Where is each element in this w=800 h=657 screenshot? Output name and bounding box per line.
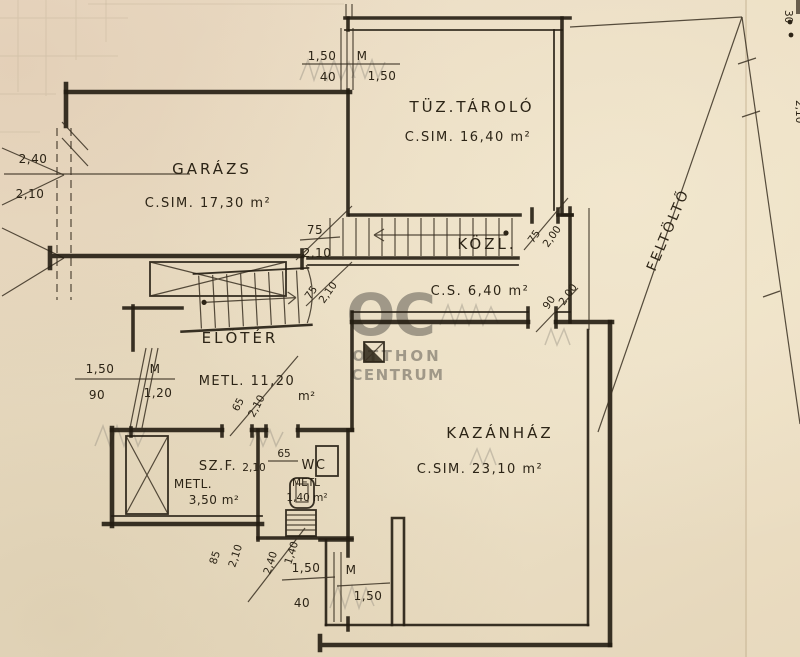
dim-garage-door-height: 2,10 bbox=[16, 187, 45, 201]
watermark-line2: CENTRUM bbox=[351, 366, 444, 384]
ramp-dim-top: 30 bbox=[782, 10, 794, 23]
room-label-tuz-tarolo: TÜZ.TÁROLÓ bbox=[408, 97, 534, 116]
watermark-logo: OC bbox=[346, 281, 434, 349]
dim-tuz-window-width: 1,50 bbox=[308, 49, 337, 63]
dim-tuz-window-parapet: 40 bbox=[320, 70, 336, 84]
room-area-eloter: METL. 11,20 bbox=[199, 374, 296, 389]
dim-tuz-window-m: M bbox=[357, 49, 368, 63]
dim-eloter-window-parapet: 90 bbox=[89, 388, 105, 402]
scanned-floorplan-page: OC OTTHON CENTRUM bbox=[0, 0, 800, 657]
room-area-tuz-tarolo: C.SIM. 16,40 m² bbox=[405, 130, 532, 145]
dim-eloter-door-height: 2,10 bbox=[246, 393, 268, 419]
dim-kazan-window-width: 1,50 bbox=[292, 561, 321, 575]
room-mat-szf: METL. bbox=[174, 477, 212, 491]
dim-eloter-window-width: 1,50 bbox=[86, 362, 115, 376]
room-label-kazanhaz: KAZÁNHÁZ bbox=[446, 423, 553, 442]
dim-szf-door-width: 85 bbox=[207, 549, 223, 565]
room-area-unit-eloter: m² bbox=[298, 389, 316, 403]
room-area-szf: 3,50 m² bbox=[189, 493, 240, 507]
dim-stair-door-left-height: 2,10 bbox=[303, 246, 332, 260]
dim-eloter-window-m: M bbox=[150, 362, 161, 376]
dim-kazan-window-height: 1,50 bbox=[354, 589, 383, 603]
room-label-garazs: GARÁZS bbox=[172, 159, 252, 178]
room-label-szf: SZ.F. bbox=[199, 459, 237, 474]
dim-kazan-window-m: M bbox=[346, 563, 357, 577]
dim-stair-door-right-height: 2,00 bbox=[541, 224, 564, 250]
dim-stair-door-left2-height: 2,10 bbox=[317, 280, 340, 306]
room-label-wc: WC bbox=[302, 458, 327, 473]
dim-tuz-window-height: 1,50 bbox=[368, 69, 397, 83]
ramp-label: FELTÖLTŐ bbox=[642, 186, 693, 274]
dim-kazan-door-height: 2,00 bbox=[557, 282, 580, 308]
room-area-garazs: C.SIM. 17,30 m² bbox=[145, 196, 272, 211]
dim-eloter-window-height: 1,20 bbox=[144, 386, 173, 400]
dim-wc-door-height: 2,10 bbox=[242, 462, 265, 474]
dim-stair-door-left-width: 75 bbox=[307, 223, 323, 237]
dim-szf-door-height: 2,10 bbox=[226, 543, 245, 569]
entry-steps bbox=[286, 510, 316, 536]
room-label-kozl: KÖZL. bbox=[457, 234, 516, 253]
dim-garage-door-width: 2,40 bbox=[19, 152, 48, 166]
room-label-eloter: ELŐTÉR bbox=[202, 327, 279, 347]
dim-eloter-door-width: 65 bbox=[230, 396, 247, 413]
dim-wc-door-width: 65 bbox=[277, 448, 290, 460]
room-area-kozl: C.S. 6,40 m² bbox=[431, 284, 530, 299]
floorplan-svg: OC OTTHON CENTRUM bbox=[0, 0, 800, 657]
dim-kazan-window-parapet: 40 bbox=[294, 596, 310, 610]
room-area-kazanhaz: C.SIM. 23,10 m² bbox=[417, 462, 544, 477]
dim-bottom-door-width: 2,40 bbox=[261, 550, 280, 576]
ramp-dim-side: 2,10 bbox=[793, 100, 800, 123]
